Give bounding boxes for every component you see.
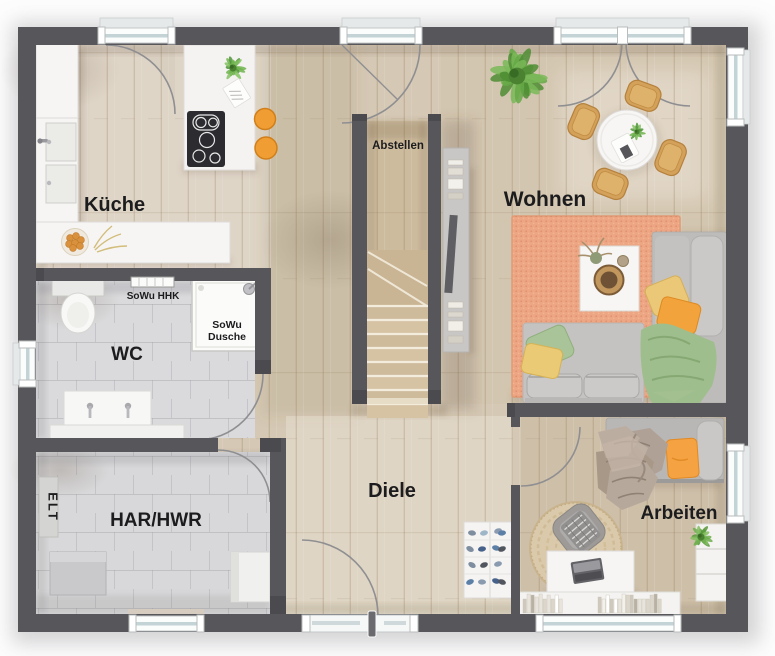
svg-text:Abstellen: Abstellen <box>372 140 424 152</box>
svg-text:SoWu: SoWu <box>212 319 242 331</box>
svg-text:Wohnen: Wohnen <box>504 188 586 211</box>
svg-text:Arbeiten: Arbeiten <box>640 503 717 524</box>
svg-text:WC: WC <box>111 344 143 365</box>
svg-text:ELT: ELT <box>46 492 61 522</box>
svg-text:Diele: Diele <box>368 480 416 502</box>
svg-text:SoWu HHK: SoWu HHK <box>127 291 180 302</box>
svg-text:HAR/HWR: HAR/HWR <box>110 510 202 531</box>
svg-text:Dusche: Dusche <box>208 331 246 343</box>
svg-text:Küche: Küche <box>84 194 145 216</box>
